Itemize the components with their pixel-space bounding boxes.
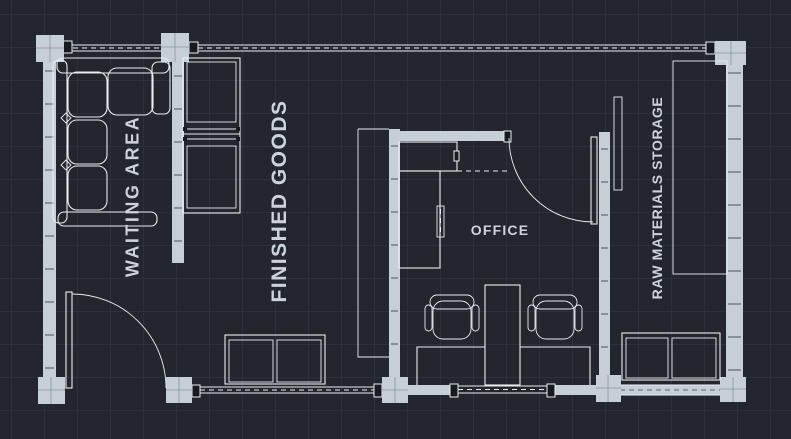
column-top-left[interactable] (36, 35, 64, 62)
desk-divider-cabinet[interactable] (485, 285, 520, 385)
finished-goods-partition-line[interactable] (358, 129, 389, 357)
window-cap (450, 384, 458, 397)
office-right-wall[interactable] (599, 132, 610, 377)
chair-seat (433, 301, 471, 339)
column-bottom-left[interactable] (38, 377, 65, 404)
office-chair[interactable] (528, 295, 582, 339)
window-cap (374, 384, 382, 397)
room-label-office[interactable]: OFFICE (471, 222, 530, 238)
column-bottom-junction[interactable] (382, 377, 408, 403)
bottom-sill-left[interactable] (406, 385, 451, 395)
shelf-joint (236, 127, 240, 131)
office-door-swing-arc[interactable] (509, 138, 593, 222)
window-cap (63, 41, 72, 53)
entrance-door-swing-arc[interactable] (72, 294, 166, 388)
column-bottom-office[interactable] (596, 375, 621, 402)
storage-wall-panel[interactable] (614, 97, 622, 190)
doors (66, 137, 597, 388)
chair-armrest (528, 305, 535, 331)
top-window-left[interactable] (64, 45, 161, 51)
office-door-leaf[interactable] (591, 137, 597, 224)
floor-plan (0, 0, 791, 439)
room-label-waiting-area[interactable]: WAITING AREA (123, 115, 144, 277)
sofa-seam-knot (61, 160, 71, 170)
window-cap (192, 385, 200, 397)
room-label-finished-goods[interactable]: FINISHED GOODS (268, 99, 292, 302)
shelving-unit[interactable] (183, 58, 240, 213)
door-jamb-cap (504, 131, 511, 142)
shelf-joint (183, 137, 187, 141)
chair-armrest (575, 305, 582, 331)
chair-armrest (425, 305, 432, 331)
left-desk[interactable] (417, 347, 485, 385)
entrance-door[interactable] (66, 292, 166, 388)
shelf-joint (236, 137, 240, 141)
office-top-wall[interactable] (389, 131, 508, 141)
window-cap (547, 384, 555, 397)
chair-backrest (430, 295, 474, 309)
column-bottom-door[interactable] (166, 377, 192, 403)
sofa-seam-knot (61, 113, 71, 123)
chair-armrest (472, 305, 479, 331)
window-cap (706, 42, 715, 54)
room-label-raw-materials-storage[interactable]: RAW MATERIALS STORAGE (649, 97, 665, 300)
column-bottom-right[interactable] (720, 377, 746, 402)
bottom-sill-right[interactable] (553, 385, 597, 395)
right-desk[interactable] (520, 347, 590, 385)
sectional-sofa[interactable] (53, 58, 170, 226)
office-door[interactable] (509, 137, 597, 224)
office-corner-counter[interactable] (399, 142, 509, 268)
bottom-window-left[interactable] (200, 387, 374, 393)
entrance-door-leaf[interactable] (66, 292, 72, 388)
cad-drawing-canvas: WAITING AREA FINISHED GOODS OFFICE RAW M… (0, 0, 791, 439)
left-exterior-wall[interactable] (43, 58, 56, 380)
office-chair[interactable] (425, 295, 479, 339)
office-left-wall[interactable] (389, 129, 400, 379)
waiting-area-partition-wall[interactable] (172, 60, 184, 263)
chair-seat (536, 301, 574, 339)
right-exterior-wall[interactable] (726, 60, 743, 378)
workstation-desks[interactable] (417, 285, 590, 385)
counter-monitor (454, 151, 459, 161)
two-door-table-finished-goods[interactable] (225, 335, 325, 384)
chair-backrest (533, 295, 577, 309)
top-window-right[interactable] (189, 45, 715, 51)
two-door-table-storage[interactable] (622, 333, 720, 380)
shelf-joint (183, 127, 187, 131)
bottom-window-middle[interactable] (458, 386, 547, 393)
window-cap (189, 42, 198, 53)
storage-rack[interactable] (673, 61, 727, 274)
